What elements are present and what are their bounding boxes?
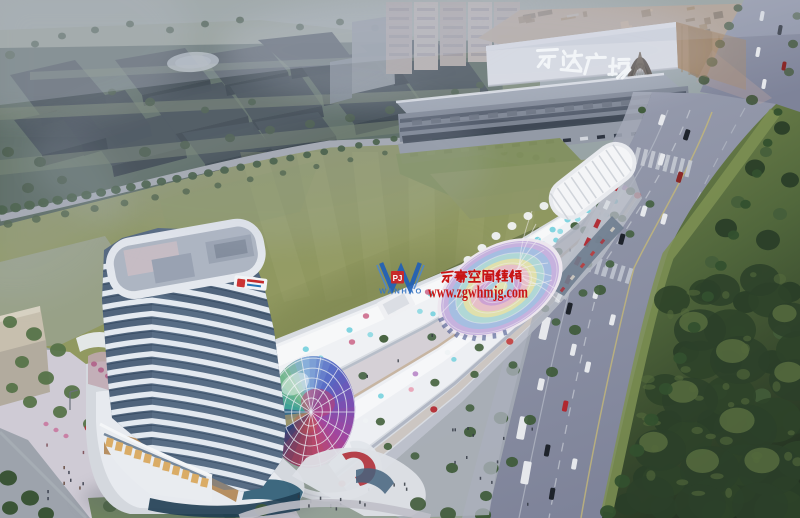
svg-text:www.zgwhmjg.com: www.zgwhmjg.com [428, 283, 528, 302]
svg-text:PJ: PJ [393, 274, 403, 283]
svg-text:WANHAO: WANHAO [379, 287, 423, 296]
